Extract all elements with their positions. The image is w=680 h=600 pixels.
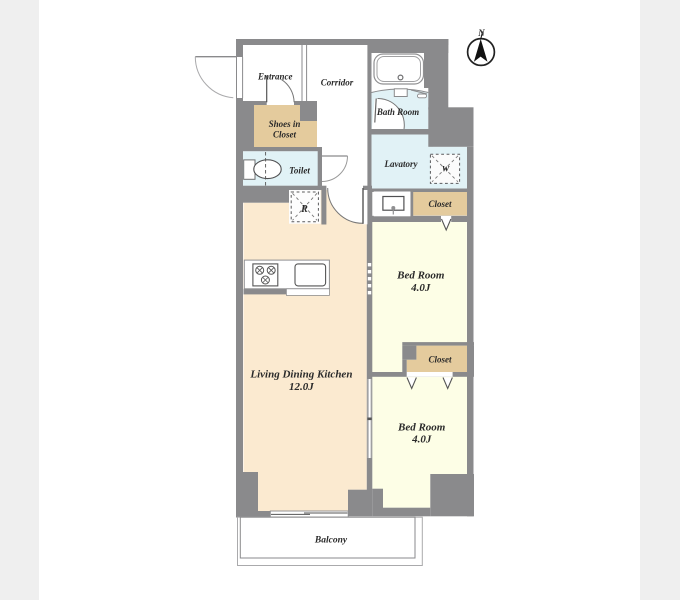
svg-text:Toilet: Toilet — [289, 165, 310, 175]
svg-text:Closet: Closet — [428, 355, 452, 365]
svg-text:Bed Room: Bed Room — [397, 422, 446, 434]
svg-text:Balcony: Balcony — [314, 536, 348, 546]
svg-text:Closet: Closet — [428, 199, 452, 209]
svg-text:Living Dining Kitchen: Living Dining Kitchen — [249, 369, 352, 381]
svg-text:Corridor: Corridor — [321, 77, 354, 87]
svg-text:R: R — [300, 204, 308, 215]
svg-text:12.0J: 12.0J — [289, 381, 314, 393]
svg-text:4.0J: 4.0J — [411, 434, 432, 446]
svg-text:4.0J: 4.0J — [410, 282, 431, 294]
svg-text:N: N — [477, 28, 485, 38]
svg-text:Lavatory: Lavatory — [384, 159, 419, 169]
svg-text:Entrance: Entrance — [257, 71, 293, 81]
svg-text:Bed Room: Bed Room — [396, 270, 445, 282]
svg-text:Shoes in: Shoes in — [269, 119, 301, 129]
svg-text:Closet: Closet — [273, 130, 297, 140]
svg-text:Bath Room: Bath Room — [376, 107, 419, 117]
